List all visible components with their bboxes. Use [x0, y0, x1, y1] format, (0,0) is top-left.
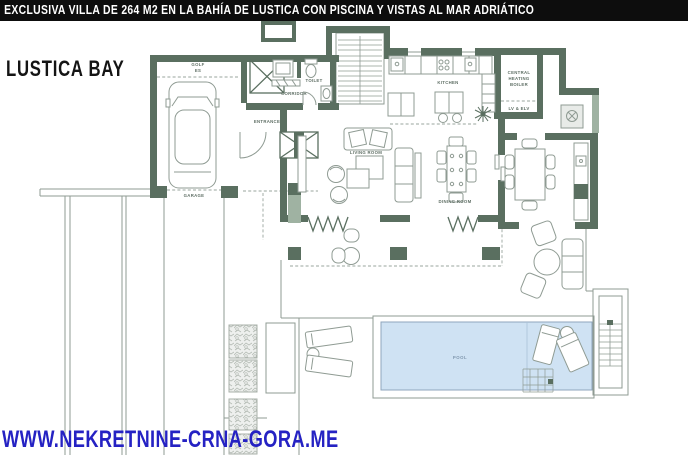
outdoor-table [515, 149, 545, 200]
main-staircase [336, 33, 384, 104]
sliding-door [495, 155, 505, 181]
outdoor-dining [505, 139, 555, 210]
armchairs [328, 166, 348, 204]
kitchen-sink [391, 58, 403, 71]
exterior-staircase [593, 289, 628, 395]
website-watermark: WWW.NEKRETNINE-CRNA-GORA.ME [2, 426, 339, 454]
site-lines [40, 189, 158, 455]
kitchen-area: KITCHEN [388, 56, 495, 124]
living-room-label: LIVING ROOM [350, 150, 382, 155]
planter [266, 323, 295, 393]
pool-area: POOL [373, 316, 594, 398]
bbq-area [561, 105, 588, 220]
location-title: LUSTICA BAY [6, 56, 125, 82]
bistro-set [332, 229, 360, 265]
dining-table [447, 146, 466, 192]
header-caption: EXCLUSIVA VILLA DE 264 M2 EN LA BAHÍA DE… [0, 0, 534, 21]
pool-label: POOL [453, 355, 467, 360]
roof-shaft [263, 23, 294, 40]
floorplan-page: EXCLUSIVA VILLA DE 264 M2 EN LA BAHÍA DE… [0, 0, 688, 460]
kitchen-label: KITCHEN [437, 80, 458, 85]
golf-label-1: GOLF [191, 62, 204, 67]
pantry-column [482, 74, 495, 112]
deck-loungers [305, 326, 353, 377]
boiler-label-3: BOILER [510, 82, 529, 87]
dining-room-label: DINING ROOM [439, 199, 472, 204]
coffee-tables [347, 156, 383, 188]
car [166, 82, 219, 188]
outdoor-lounge [520, 220, 583, 299]
boiler-label-1: CENTRAL [508, 70, 531, 75]
outdoor-counter [574, 143, 588, 220]
toilet-room: TOILET [303, 59, 332, 105]
boiler-label-2: HEATING [508, 76, 529, 81]
dining-area: DINING ROOM [437, 137, 476, 204]
golf-label-2: ES [195, 68, 201, 73]
sofa-top [344, 128, 392, 150]
garage-room: GOLF ES GARAGE [157, 62, 240, 198]
entrance-label: ENTRANCE [254, 119, 280, 124]
lv-elv-label: LV & ELV [508, 106, 529, 111]
boiler-room: CENTRAL HEATING BOILER LV & ELV [501, 70, 537, 111]
sofa-side [395, 148, 421, 202]
garage-label: GARAGE [184, 193, 205, 198]
toilet-label: TOILET [306, 78, 323, 83]
console-shelf [298, 136, 306, 192]
header-bar: EXCLUSIVA VILLA DE 264 M2 EN LA BAHÍA DE… [0, 0, 688, 21]
